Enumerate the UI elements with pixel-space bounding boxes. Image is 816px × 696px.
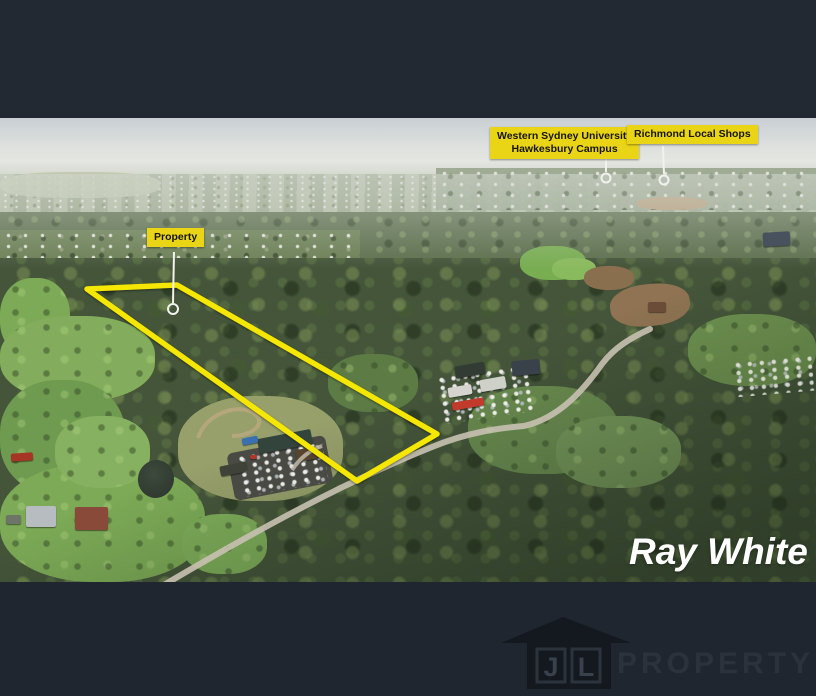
shops-leader-line [663, 146, 664, 174]
label-shops: Richmond Local Shops [627, 125, 758, 144]
shops-marker-circle [660, 176, 669, 185]
property-boundary [87, 285, 437, 481]
property-marker-circle [168, 304, 178, 314]
ray-white-logo: Ray White [629, 531, 808, 573]
annotation-overlay [0, 118, 816, 582]
label-university-line2: Hawkesbury Campus [497, 143, 632, 156]
jl-property-logo: J L PROPERTY [493, 612, 813, 696]
initial-l: L [578, 652, 595, 682]
label-property: Property [147, 228, 204, 247]
label-university: Western Sydney University Hawkesbury Cam… [490, 127, 639, 159]
top-letterbox-bar [0, 0, 816, 118]
listing-photo-slide: Property Western Sydney University Hawke… [0, 0, 816, 696]
property-leader-line [173, 252, 174, 303]
aerial-photo [0, 118, 816, 582]
initial-j: J [543, 652, 558, 682]
property-wordmark: PROPERTY [617, 647, 814, 681]
house-roof-shape [501, 617, 631, 643]
university-marker-circle [602, 174, 611, 183]
label-university-line1: Western Sydney University [497, 130, 632, 143]
dirt-driveway-loop [198, 409, 259, 438]
